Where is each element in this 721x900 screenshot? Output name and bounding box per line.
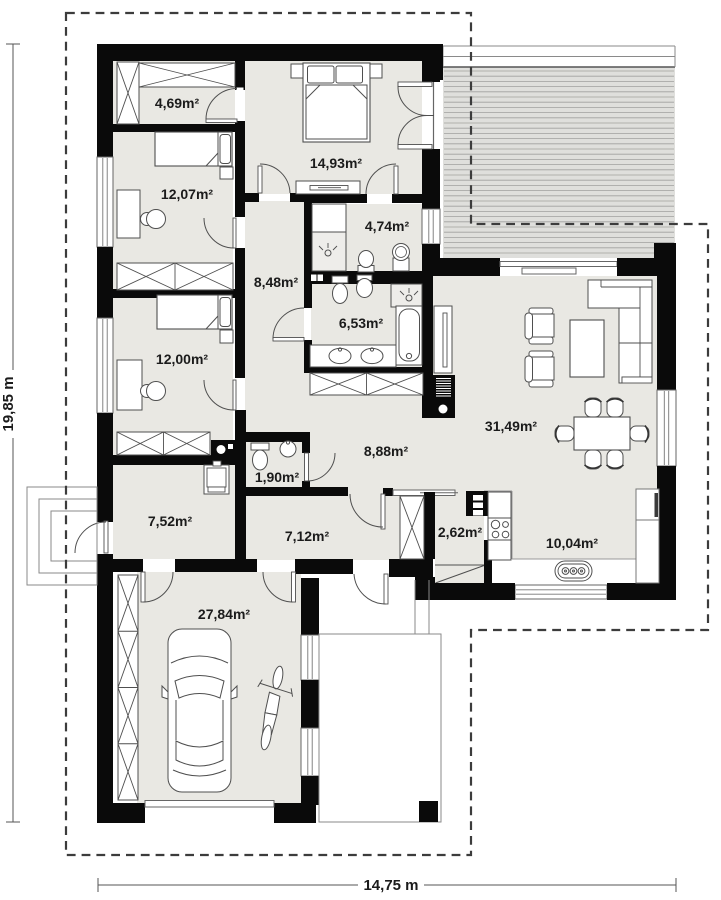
svg-text:4,74m²: 4,74m² bbox=[365, 218, 410, 234]
svg-text:14,93m²: 14,93m² bbox=[310, 155, 362, 171]
svg-text:6,53m²: 6,53m² bbox=[339, 315, 384, 331]
svg-text:12,00m²: 12,00m² bbox=[156, 351, 208, 367]
svg-text:31,49m²: 31,49m² bbox=[485, 418, 537, 434]
svg-text:8,88m²: 8,88m² bbox=[364, 443, 409, 459]
svg-text:2,62m²: 2,62m² bbox=[438, 524, 483, 540]
svg-text:12,07m²: 12,07m² bbox=[161, 186, 213, 202]
svg-text:10,04m²: 10,04m² bbox=[546, 535, 598, 551]
svg-text:27,84m²: 27,84m² bbox=[198, 606, 250, 622]
svg-text:1,90m²: 1,90m² bbox=[255, 469, 300, 485]
svg-text:7,12m²: 7,12m² bbox=[285, 528, 330, 544]
svg-text:8,48m²: 8,48m² bbox=[254, 274, 299, 290]
svg-text:4,69m²: 4,69m² bbox=[155, 95, 200, 111]
svg-text:19,85 m: 19,85 m bbox=[0, 376, 17, 431]
svg-text:14,75 m: 14,75 m bbox=[363, 877, 418, 894]
svg-text:7,52m²: 7,52m² bbox=[148, 513, 193, 529]
